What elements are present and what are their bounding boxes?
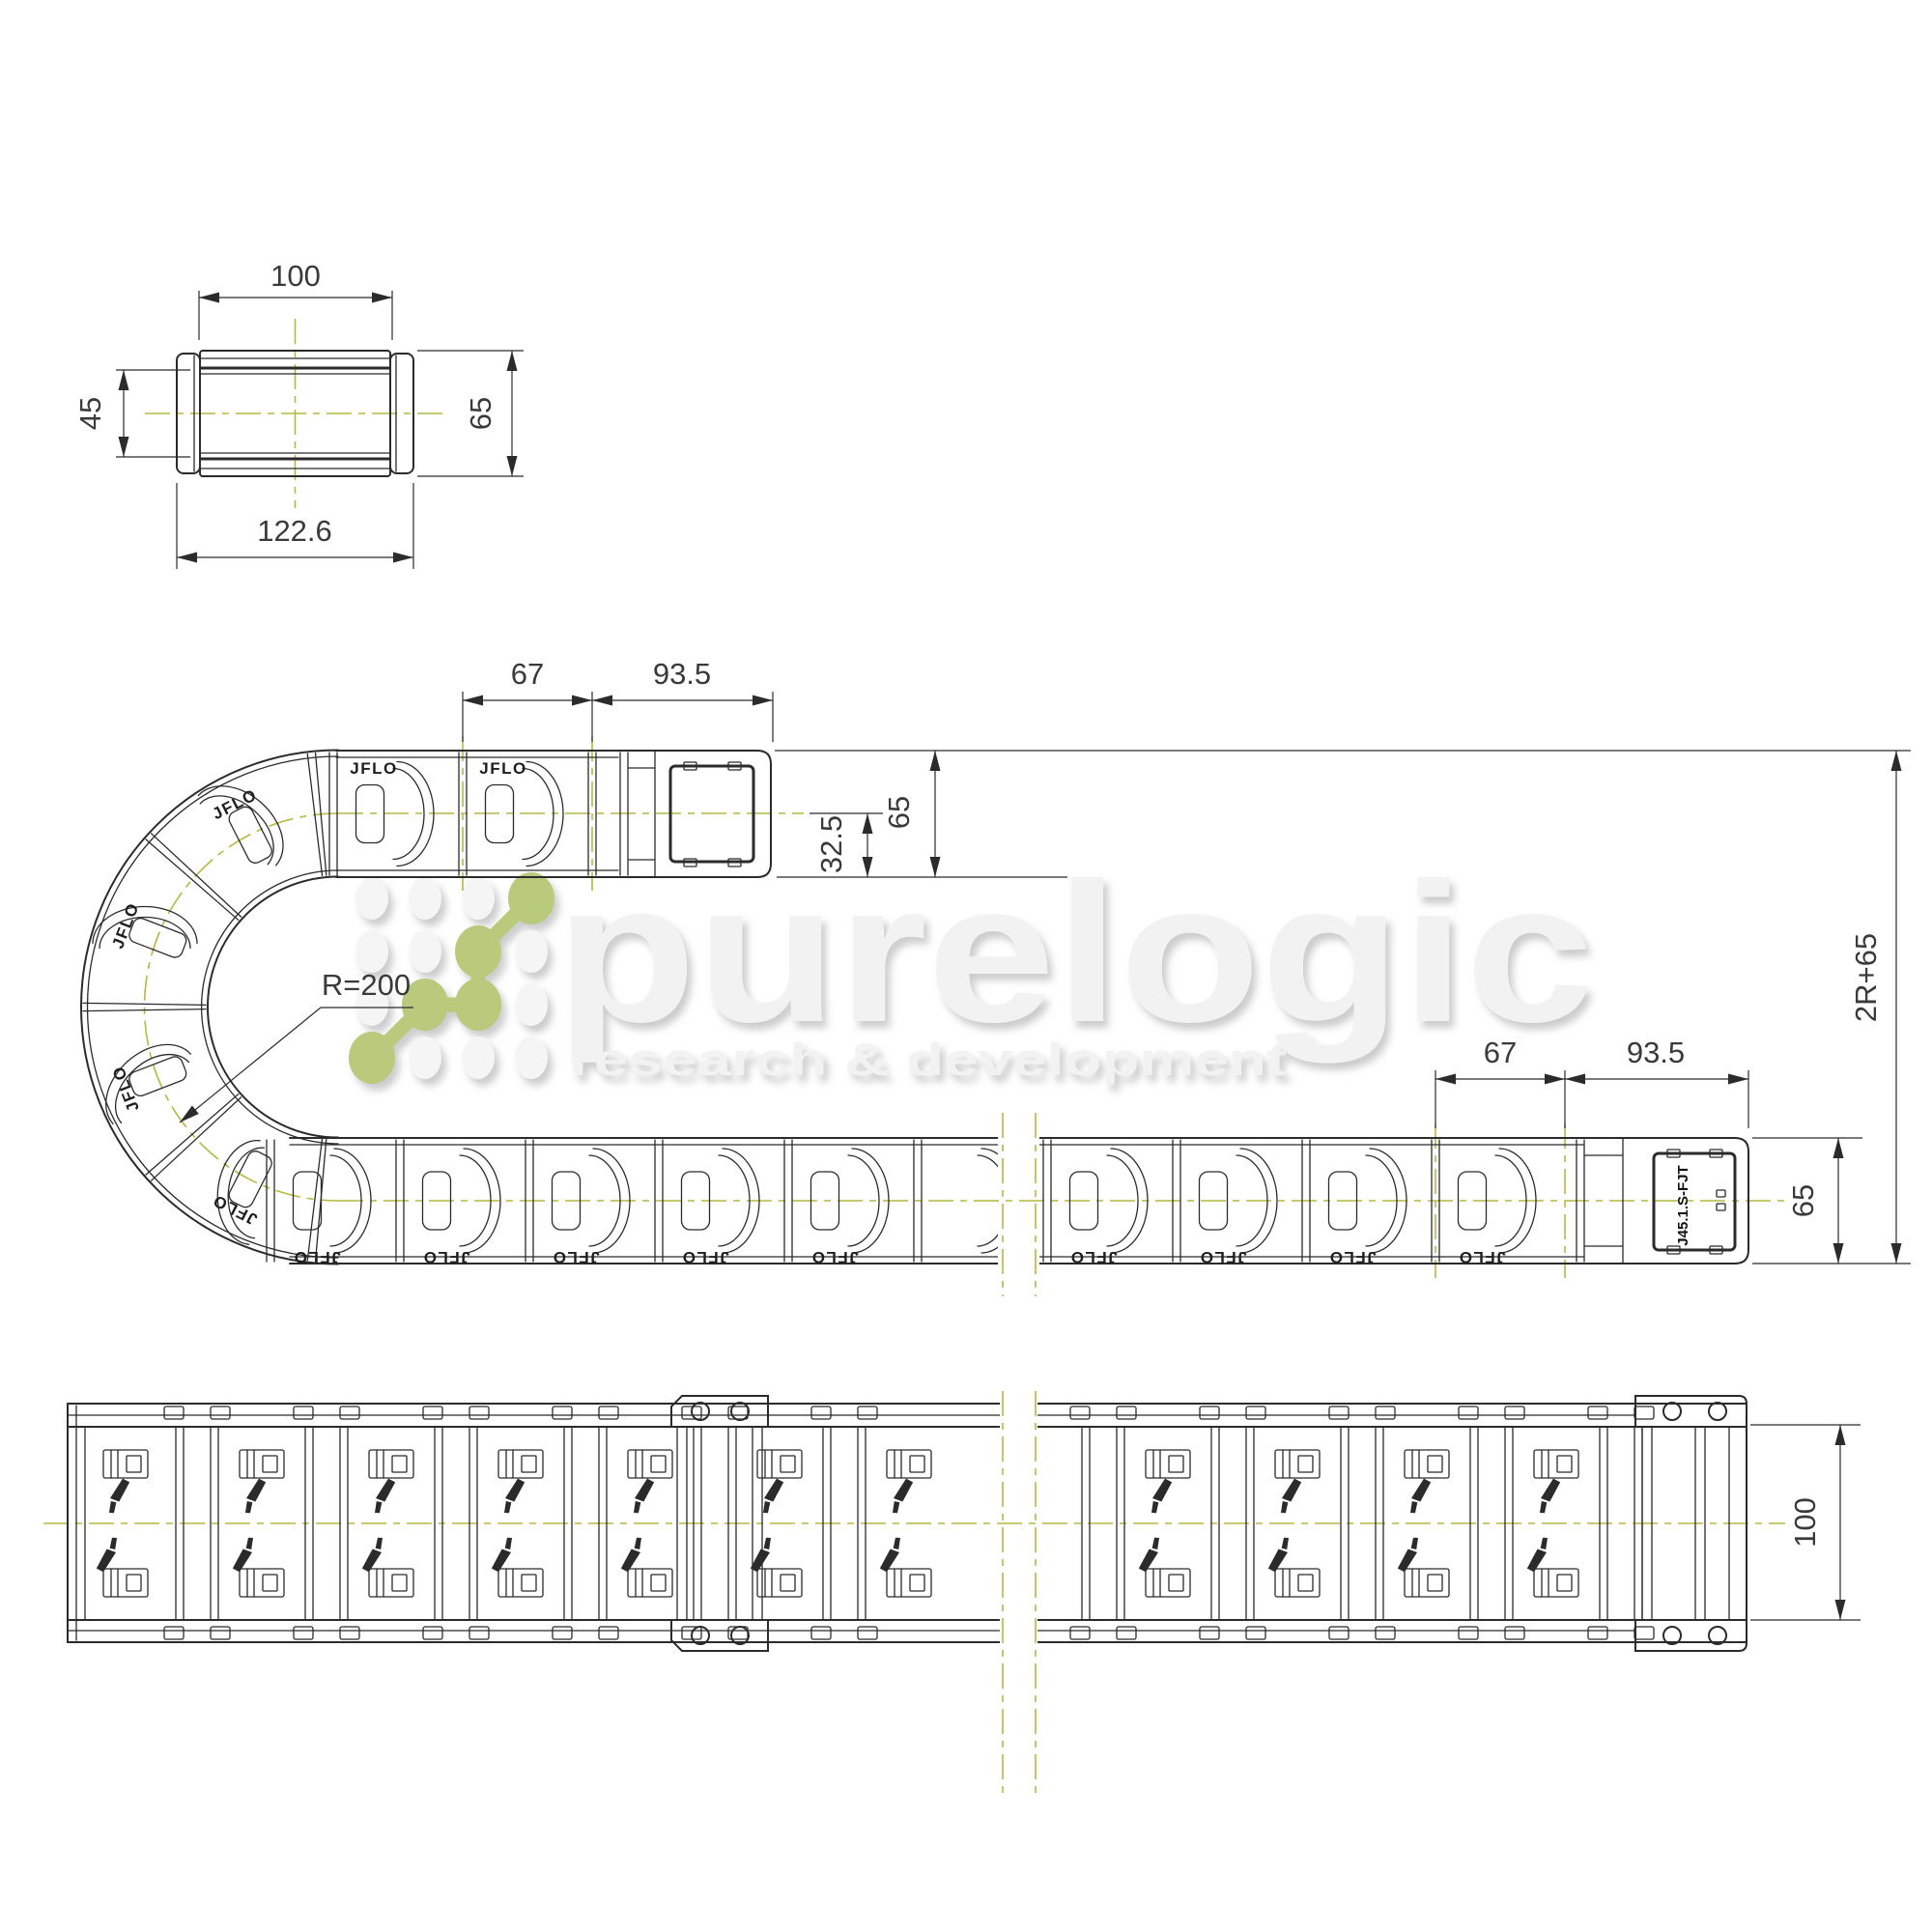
drawing-path <box>145 813 338 1201</box>
chain-bend: JFLOJFLOJFLOJFLO <box>81 751 338 1264</box>
drawing-line <box>83 1003 206 1005</box>
logo-dot-green <box>508 872 554 924</box>
link-brand-text: JFLO <box>810 1248 858 1266</box>
latch-icon <box>1269 1476 1311 1515</box>
drawing-rect <box>127 1575 141 1591</box>
latch-icon <box>363 1476 405 1515</box>
dimension-arrow <box>177 1106 199 1127</box>
dimension-label: 65 <box>882 796 916 829</box>
dimension-arrow <box>507 351 518 371</box>
drawing-rect <box>1169 1575 1183 1591</box>
link-brand-text: JFLO <box>681 1248 728 1266</box>
logo-dot-white <box>409 1037 441 1079</box>
bend-link-arc <box>93 907 197 949</box>
link-brand-text: JFLO <box>479 759 526 778</box>
link-brand-text: JFLO <box>1328 1248 1376 1266</box>
drawing-rect <box>1298 1575 1313 1591</box>
dimension-arrow <box>592 696 612 706</box>
drawing-rect <box>211 1627 230 1639</box>
latch-icon <box>1140 1476 1181 1515</box>
drawing-rect <box>1634 1406 1654 1419</box>
drawing-rect <box>423 1406 442 1419</box>
drawing-rect <box>599 1406 618 1419</box>
dimension-arrow <box>463 696 483 706</box>
dimension-arrow <box>119 437 129 457</box>
link-brand-text: JFLO <box>293 1248 340 1266</box>
logo-dot-white <box>515 983 548 1026</box>
latch-icon <box>234 1476 275 1515</box>
dimension-label: 93.5 <box>1627 1036 1685 1069</box>
link-brand-text: JFLO <box>1069 1248 1117 1266</box>
drawing-rect <box>1246 1627 1265 1639</box>
drawing-rect <box>910 1456 924 1472</box>
drawing-rect <box>553 1627 572 1639</box>
logo-dot-white <box>462 1037 495 1079</box>
drawing-rect <box>811 1406 831 1419</box>
logo-dot-green <box>455 925 501 978</box>
dimension-arrow <box>372 293 392 303</box>
drawing-rect <box>522 1575 536 1591</box>
drawing-rect <box>1654 1153 1735 1250</box>
latch-icon <box>493 1476 534 1515</box>
latch-icon <box>622 1476 664 1515</box>
link-brand-text: JFLO <box>422 1248 469 1266</box>
drawing-rect <box>1246 1406 1265 1419</box>
drawing-rect <box>522 1456 536 1472</box>
logo-dot-white <box>409 930 441 973</box>
drawing-rect <box>1298 1456 1313 1472</box>
drawing-rect <box>1070 1627 1090 1639</box>
drawing-path <box>671 1396 768 1427</box>
drawing-rect <box>1117 1406 1136 1419</box>
latch-icon <box>1399 1476 1440 1515</box>
dimension-arrow <box>1891 1243 1902 1264</box>
drawing-rect <box>1634 1627 1654 1639</box>
dimension-arrow <box>119 370 129 390</box>
drawing-rect <box>164 1627 184 1639</box>
logo-dot-green <box>455 979 501 1031</box>
dimension-arrow <box>507 456 518 476</box>
dimension-arrow <box>1891 751 1902 771</box>
drawing-rect <box>1505 1627 1524 1639</box>
bend-link-label: JFLO <box>210 785 261 823</box>
drawing-rect <box>423 1627 442 1639</box>
dimension-label: 32.5 <box>814 815 848 873</box>
drawing-rect <box>1505 1406 1524 1419</box>
drawing-rect <box>263 1575 277 1591</box>
dimension-arrow <box>1435 1074 1456 1085</box>
dimension-label: 93.5 <box>653 657 711 691</box>
drawing-path <box>208 877 338 1138</box>
logo-dot-green <box>349 1032 395 1084</box>
drawing-rect <box>1428 1456 1442 1472</box>
logo-dot-white <box>515 930 548 973</box>
drawing-rect <box>263 1456 277 1472</box>
drawing-rect <box>781 1456 795 1472</box>
drawing-rect <box>1459 1406 1478 1419</box>
dimension-arrow <box>1545 1074 1565 1085</box>
dimension-label: 65 <box>464 397 497 430</box>
dimension-arrow <box>1833 1138 1844 1158</box>
drawing-rect <box>1376 1627 1395 1639</box>
logo-dot-white <box>409 877 441 920</box>
latch-icon <box>1528 1476 1570 1515</box>
drawing-rect <box>1459 1627 1478 1639</box>
drawing-rect <box>910 1575 924 1591</box>
logo-dot-white <box>355 930 388 973</box>
link-brand-text: JFLO <box>1199 1248 1246 1266</box>
drawing-rect <box>127 1456 141 1472</box>
drawing-rect <box>651 1456 666 1472</box>
drawing-rect <box>1588 1627 1607 1639</box>
drawing-rect <box>1557 1456 1572 1472</box>
drawing-rect <box>651 1575 666 1591</box>
dimension-label: R=200 <box>322 968 411 1002</box>
drawing-rect <box>469 1627 489 1639</box>
dimension-label: 67 <box>1484 1036 1517 1069</box>
logo-dot-white <box>462 877 495 920</box>
watermark-title: purelogic <box>555 841 1594 1064</box>
drawing-path <box>671 1620 768 1651</box>
drawing-rect <box>164 1406 184 1419</box>
latch-icon <box>881 1476 923 1515</box>
drawing-path <box>93 907 197 944</box>
drawing-rect <box>469 1406 489 1419</box>
dimension-arrow <box>572 696 592 706</box>
drawing-rect <box>1557 1575 1572 1591</box>
drawing-rect <box>1428 1575 1442 1591</box>
dimension-label: 100 <box>270 259 321 293</box>
drawing-path <box>88 756 339 1258</box>
chain-lower-run: JFLOJFLOJFLOJFLOJFLOJFLOJFLOJFLOJFLOJ45.… <box>267 1138 1748 1266</box>
link-brand-text: JFLO <box>552 1248 599 1266</box>
dimension-label: 65 <box>1786 1184 1820 1217</box>
drawing-rect <box>392 1456 407 1472</box>
dimension-arrow <box>1728 1074 1748 1085</box>
drawing-rect <box>1169 1456 1183 1472</box>
dimension-arrow <box>930 751 941 771</box>
dimension-label: 122.6 <box>257 514 332 548</box>
drawing-rect <box>1200 1627 1219 1639</box>
drawing-rect <box>781 1575 795 1591</box>
drawing-rect <box>294 1406 313 1419</box>
drawing-path <box>1635 1620 1747 1651</box>
drawing-rect <box>1588 1406 1607 1419</box>
drawing-line <box>180 1008 321 1122</box>
drawing-rect <box>1329 1627 1349 1639</box>
drawing-rect <box>392 1575 407 1591</box>
dimension-arrow <box>1565 1074 1585 1085</box>
drawing-rect <box>294 1627 313 1639</box>
dimension-label: 45 <box>73 397 107 430</box>
drawing-rect <box>858 1627 877 1639</box>
dimension-arrow <box>1833 1243 1844 1264</box>
drawing-rect <box>1117 1627 1136 1639</box>
drawing-rect <box>553 1406 572 1419</box>
dimension-arrow <box>753 696 773 706</box>
drawing-line <box>152 834 241 917</box>
dimension-label: 100 <box>1788 1497 1822 1548</box>
drawing-rect <box>340 1627 359 1639</box>
drawing-rect <box>1717 1190 1725 1197</box>
watermark-subtitle: research & development <box>570 1034 1287 1085</box>
link-brand-text: JFLO <box>1458 1248 1505 1266</box>
drawing-rect <box>1200 1406 1219 1419</box>
link-brand-text: JFLO <box>210 785 261 823</box>
drawing-rect <box>858 1406 877 1419</box>
drawing-rect <box>211 1406 230 1419</box>
drawing-rect <box>599 1627 618 1639</box>
drawing-rect <box>1717 1204 1725 1210</box>
latch-icon <box>752 1476 793 1515</box>
connector-model-label: J45.1.S-FJT <box>1675 1165 1691 1245</box>
dimension-arrow <box>199 293 219 303</box>
drawing-path <box>81 751 338 1264</box>
drawing-page: purelogicresearch & development JFLOJFLO… <box>0 0 1932 1932</box>
dimension-arrow <box>1835 1425 1846 1445</box>
technical-drawing: purelogicresearch & development JFLOJFLO… <box>0 0 1932 1932</box>
dimension-label: 2R+65 <box>1849 933 1883 1022</box>
drawing-path <box>1635 1396 1747 1427</box>
drawing-rect <box>340 1406 359 1419</box>
drawing-rect <box>1376 1406 1395 1419</box>
dimension-arrow <box>393 553 413 563</box>
latch-icon <box>98 1476 139 1515</box>
dimension-arrow <box>1835 1600 1846 1620</box>
drawing-path <box>202 870 338 1144</box>
drawing-rect <box>1070 1406 1090 1419</box>
logo-dot-white <box>355 877 388 920</box>
link-brand-text: JFLO <box>350 759 397 778</box>
drawing-rect <box>811 1627 831 1639</box>
dimension-label: 67 <box>511 657 544 691</box>
drawing-rect <box>1329 1406 1349 1419</box>
dimension-arrow <box>863 813 873 834</box>
dimension-arrow <box>177 553 197 563</box>
logo-dot-white <box>515 1037 548 1079</box>
